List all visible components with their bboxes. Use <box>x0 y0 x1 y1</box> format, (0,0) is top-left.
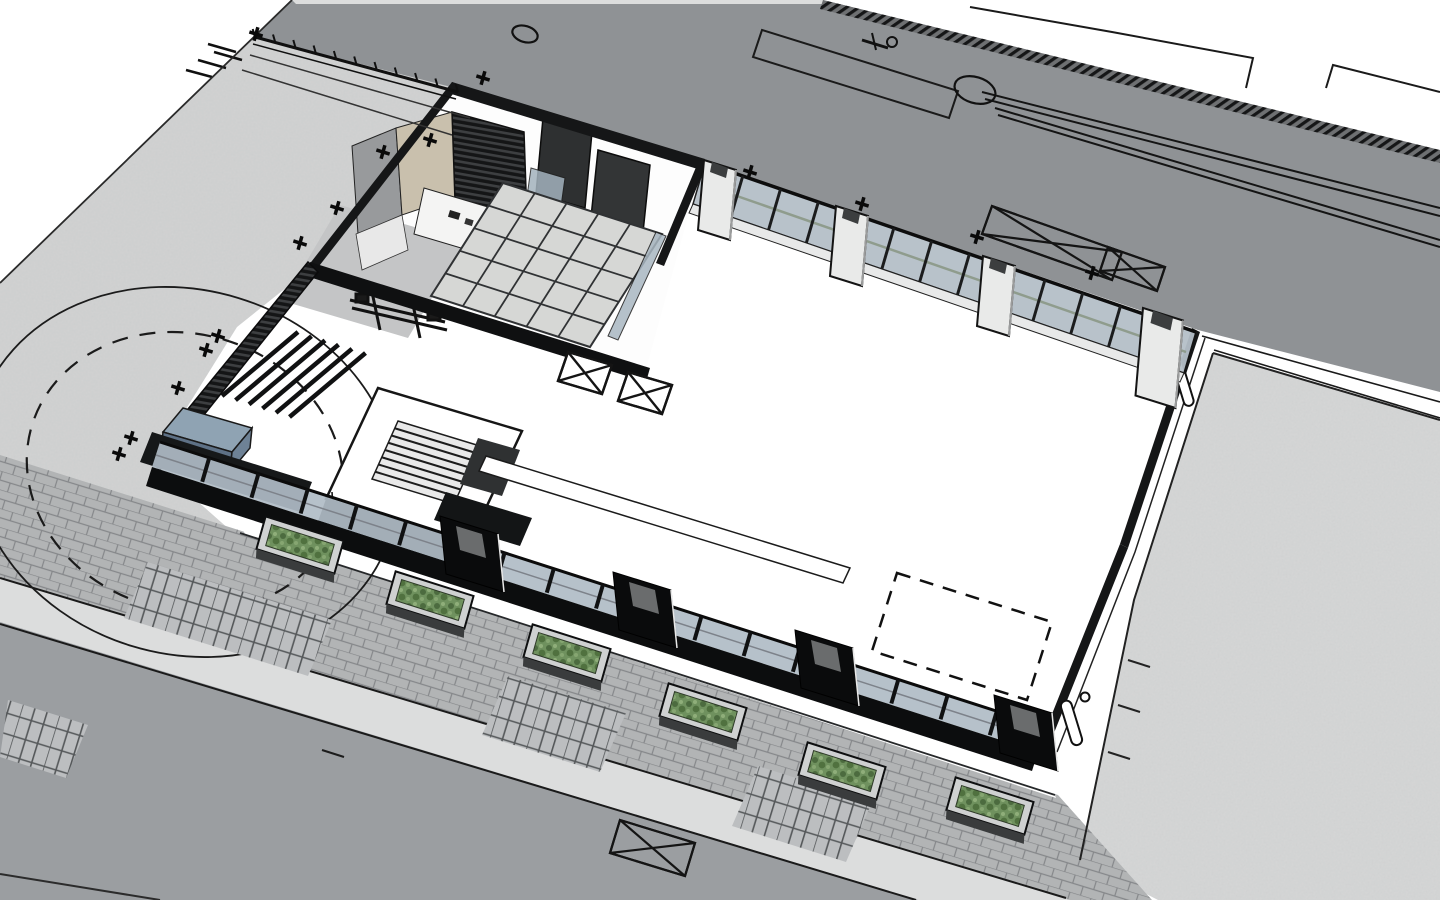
colonnade-pier <box>830 206 868 286</box>
model-viewport[interactable] <box>0 0 1440 900</box>
colonnade-pier <box>698 160 736 240</box>
colonnade-pier <box>977 256 1015 336</box>
colonnade-pier <box>1136 308 1184 408</box>
far-curb-strip <box>292 0 824 4</box>
